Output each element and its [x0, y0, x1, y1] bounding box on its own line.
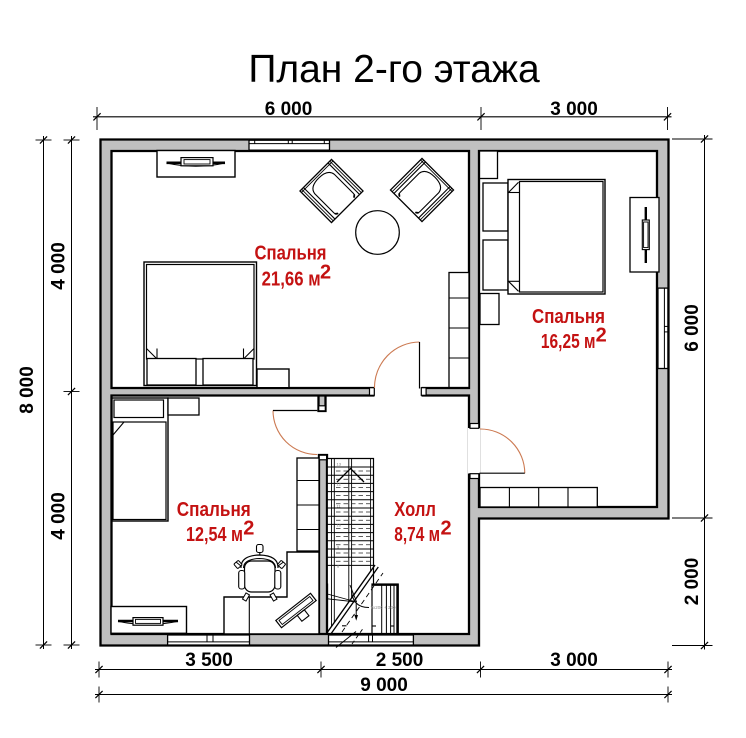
svg-text:План 2-го этажа: План 2-го этажа: [248, 48, 540, 91]
svg-text:6 000: 6 000: [265, 99, 313, 120]
svg-text:4 000: 4 000: [49, 492, 70, 540]
svg-text:2: 2: [441, 517, 452, 539]
svg-text:3 000: 3 000: [550, 99, 598, 120]
svg-text:2: 2: [596, 325, 607, 347]
svg-text:8,74 м: 8,74 м: [394, 524, 440, 546]
svg-text:2: 2: [243, 517, 254, 539]
svg-text:10: 10: [337, 523, 342, 528]
svg-text:8 000: 8 000: [17, 366, 38, 414]
svg-text:Спальня: Спальня: [532, 306, 605, 328]
svg-text:Холл: Холл: [394, 499, 436, 521]
svg-text:12: 12: [337, 482, 342, 487]
svg-text:3 500: 3 500: [185, 650, 233, 671]
svg-text:21,66 м: 21,66 м: [262, 269, 321, 291]
svg-text:13: 13: [337, 461, 342, 466]
svg-text:9 000: 9 000: [360, 675, 408, 696]
svg-text:2 000: 2 000: [682, 558, 703, 606]
svg-text:7x200 + 300: 7x200 + 300: [371, 605, 396, 610]
svg-text:2 500: 2 500: [376, 650, 424, 671]
svg-text:4 000: 4 000: [49, 242, 70, 290]
svg-text:12,54 м: 12,54 м: [186, 524, 243, 546]
svg-text:16,25 м: 16,25 м: [541, 331, 596, 353]
svg-text:2: 2: [320, 262, 331, 284]
svg-text:Спальня: Спальня: [177, 499, 251, 521]
svg-text:6 000: 6 000: [682, 304, 703, 352]
svg-text:Спальня: Спальня: [255, 243, 327, 265]
svg-text:3 000: 3 000: [550, 650, 598, 671]
